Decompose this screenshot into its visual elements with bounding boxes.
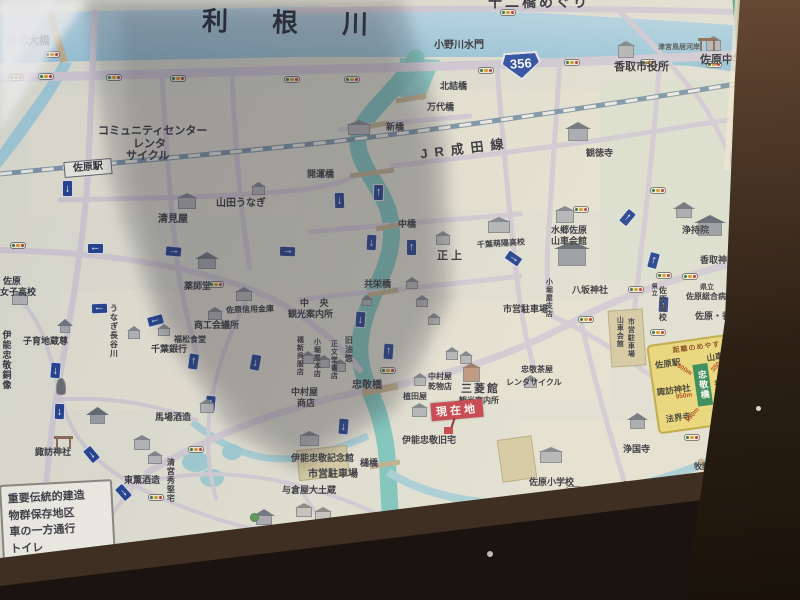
tree-icon	[250, 513, 259, 522]
traffic-signal-icon	[564, 59, 580, 66]
torii-icon	[700, 38, 715, 51]
traffic-signal-icon	[380, 367, 396, 374]
building-icon	[236, 291, 252, 301]
shop-label: 中村屋	[428, 373, 452, 381]
distance-value: 550m	[685, 407, 701, 424]
traffic-signal-icon	[148, 494, 164, 501]
parking-label: 市営駐車場	[503, 305, 548, 314]
traffic-signal-icon	[106, 74, 122, 81]
tourist-info-label: 中 央	[300, 299, 333, 308]
traffic-signal-icon	[170, 75, 186, 82]
house-icon	[428, 317, 440, 325]
chamber-label: 商工会議所	[194, 321, 239, 330]
one-way-arrow-icon: ↑	[373, 184, 385, 201]
route-name-label: 十二橋めぐり	[488, 0, 590, 10]
rental-cycle-label: レンタサイクル	[506, 379, 562, 387]
current-location-marker-icon	[444, 427, 453, 434]
shop-label: 正上	[437, 251, 465, 263]
shop-label: 中村屋	[291, 388, 318, 397]
school-label: 佐原小学校	[529, 478, 574, 487]
house-icon	[148, 455, 162, 464]
temple-icon	[198, 258, 216, 269]
house-icon	[158, 328, 170, 336]
shop-label: 旧油惣	[344, 336, 352, 376]
community-center-label: コミュニティセンター	[98, 126, 207, 138]
store-label: 清見屋	[158, 215, 188, 226]
bridge-label: 水郷大橋	[6, 36, 50, 48]
museum-label: 伊能忠敬記念館	[291, 454, 354, 463]
shrine-label: 諏訪神社	[35, 448, 71, 457]
one-way-arrow-icon: ↑	[91, 303, 108, 315]
bridge-label: 中橋	[398, 220, 416, 229]
building-icon	[348, 124, 370, 135]
warehouse-label: 与倉屋大土蔵	[282, 486, 336, 495]
house-icon	[446, 351, 458, 360]
shop-label: 小堀屋支店	[545, 278, 552, 328]
building-icon	[488, 221, 510, 233]
bridge-label: 万代橋	[427, 103, 454, 112]
temple-label: 観徳寺	[586, 149, 613, 158]
building-icon	[208, 311, 222, 320]
traffic-signal-icon	[684, 434, 700, 441]
traffic-signal-icon	[650, 187, 666, 194]
temple-icon	[676, 208, 692, 218]
traffic-signal-icon	[650, 329, 666, 336]
bolt-dot	[487, 551, 493, 557]
one-way-arrow-icon: ↑	[354, 311, 366, 329]
school-label: 佐原	[3, 277, 21, 286]
museum-label: 水郷佐原	[551, 226, 587, 235]
temple-icon	[568, 128, 588, 141]
historic-house-label: 清宮秀堅宅	[166, 458, 174, 528]
traffic-signal-icon	[38, 73, 54, 80]
rental-cycle-label: サイクル	[126, 151, 169, 163]
traffic-signal-icon	[628, 286, 644, 293]
traffic-signal-icon	[682, 273, 698, 280]
bridge-label: 北詰橋	[440, 82, 467, 91]
brewery-label: 馬場酒造	[155, 413, 191, 422]
jizo-label: 子育地蔵尊	[23, 337, 68, 346]
one-way-arrow-icon: ↑	[279, 246, 296, 258]
traffic-signal-icon	[8, 74, 24, 81]
one-way-arrow-icon: ↑	[406, 239, 417, 256]
traffic-signal-icon	[284, 76, 300, 83]
brick-building-icon	[463, 367, 480, 382]
building-icon	[556, 210, 574, 223]
river-name-label: 利根川	[202, 8, 413, 40]
house-icon	[416, 299, 428, 307]
warehouse-icon	[296, 507, 312, 517]
parking-label: 市営駐車場	[627, 318, 634, 374]
one-way-arrow-icon: ↑	[334, 192, 346, 209]
museum-label: 山車会館	[551, 237, 587, 246]
building-icon	[540, 451, 562, 463]
traffic-signal-icon	[44, 51, 60, 58]
map-signboard-photo: ↑↑↑↑↑↑↑↑↑↑↑↑↑↑↑↑↑↑↑↑↑↑↑↑↑ 利根川 水郷大橋 十二橋めぐ…	[0, 0, 800, 600]
statue-icon	[56, 378, 66, 395]
one-way-arrow-icon: ↑	[54, 403, 66, 420]
statue-label: 伊能忠敬銅像	[1, 330, 10, 430]
bank-label: 千葉銀行	[151, 345, 187, 354]
bank-label: 佐原信用金庫	[226, 305, 274, 315]
parking-label: 山車会館	[616, 316, 623, 364]
temple-label: 浄持院	[682, 226, 709, 235]
traffic-signal-icon	[344, 76, 360, 83]
shrine-label: 八坂神社	[572, 286, 608, 295]
building-icon	[618, 45, 634, 58]
shop-label: 正文堂書店	[330, 340, 337, 400]
bridge-label: 新橋	[386, 123, 404, 132]
temple-label: 薬師堂	[184, 282, 211, 291]
building-icon	[178, 197, 196, 209]
bridge-label: 共栄橋	[364, 280, 391, 289]
distance-value: 950m	[675, 391, 692, 400]
hospital-label: 県立	[700, 284, 714, 291]
restaurant-label: うなぎ長谷川	[109, 304, 117, 370]
tourist-info-label: 観光案内所	[288, 310, 333, 319]
rental-cycle-label: レンタ	[133, 139, 166, 151]
shrine-icon	[90, 414, 105, 424]
one-way-arrow-icon: ↑	[62, 180, 73, 197]
traffic-signal-icon	[478, 67, 494, 74]
one-way-arrow-icon: ↑	[87, 243, 104, 254]
house-icon	[460, 355, 472, 364]
one-way-arrow-icon: ↑	[337, 418, 349, 436]
watergate-label: 小野川水門	[434, 41, 484, 52]
house-icon	[414, 377, 426, 386]
teahouse-label: 忠敬茶屋	[521, 366, 553, 374]
brewery-label: 東薫酒造	[124, 476, 160, 485]
one-way-arrow-icon: ↑	[366, 234, 378, 252]
traffic-signal-icon	[500, 9, 516, 16]
house-icon	[412, 407, 427, 417]
one-way-arrow-icon: ↑	[49, 362, 61, 380]
one-way-arrow-icon: ↑	[187, 352, 200, 370]
shrine-icon	[558, 248, 586, 266]
one-way-arrow-icon: ↑	[382, 343, 394, 361]
temple-label: 浄国寺	[623, 445, 650, 454]
temple-icon	[60, 325, 70, 333]
traffic-signal-icon	[10, 242, 26, 249]
bolt-dot	[756, 406, 761, 411]
bridge-label: 樋橋	[360, 459, 378, 468]
landmark-label: 三菱館	[461, 384, 500, 396]
school-label: 佐原高校	[658, 286, 666, 326]
shop-label: 植田屋	[403, 393, 427, 401]
bridge-label: 忠敬橋	[352, 381, 382, 392]
building-icon	[300, 435, 319, 446]
house-icon	[406, 281, 418, 289]
historic-house-label: 伊能忠敬旧宅	[402, 436, 456, 445]
house-icon	[134, 439, 150, 450]
shop-label: 乾物店	[428, 383, 452, 391]
shop-label: 商店	[297, 399, 315, 408]
house-icon	[128, 330, 140, 339]
traffic-signal-icon	[188, 446, 204, 453]
parking-label: 市営駐車場	[308, 470, 358, 481]
wharf-label: 津宮鳥居河岸	[658, 44, 700, 51]
house-icon	[362, 299, 372, 306]
house-icon	[436, 235, 450, 245]
bridge-label: 開運橋	[307, 170, 334, 179]
shop-label: 山田うなぎ	[216, 199, 266, 210]
house-icon	[200, 403, 214, 413]
one-way-arrow-icon: ↑	[165, 245, 183, 257]
temple-icon	[630, 419, 645, 429]
traffic-signal-icon	[573, 206, 589, 213]
distance-value: 600m	[675, 362, 693, 377]
school-label: 県立	[650, 283, 656, 303]
school-label: 女子高校	[0, 288, 36, 297]
house-icon	[252, 186, 265, 195]
traffic-signal-icon	[656, 272, 672, 279]
traffic-signal-icon	[578, 316, 594, 323]
cityhall-label: 香取市役所	[614, 62, 669, 74]
